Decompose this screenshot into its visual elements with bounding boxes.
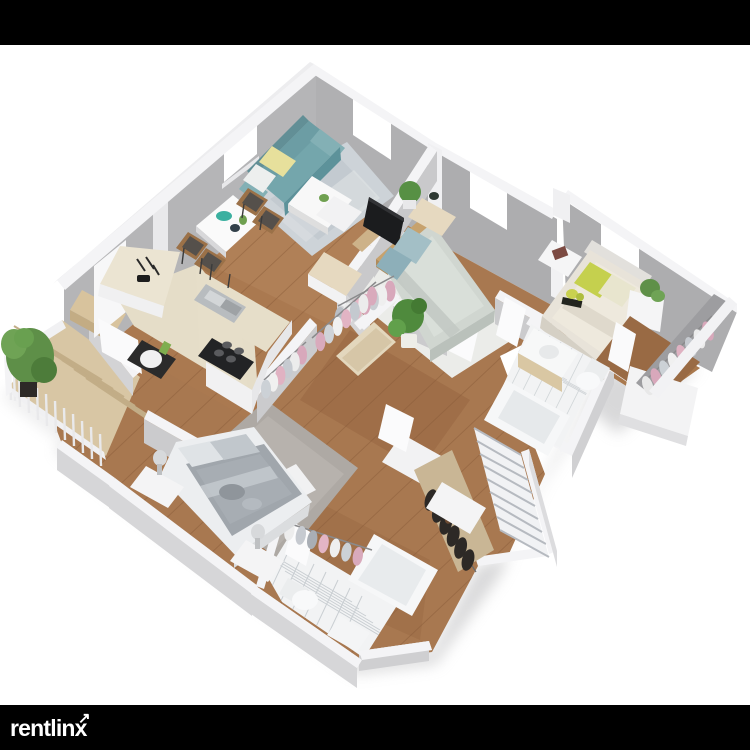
svg-text:↗: ↗: [78, 710, 91, 727]
svg-text:rentlinx: rentlinx: [10, 715, 88, 741]
